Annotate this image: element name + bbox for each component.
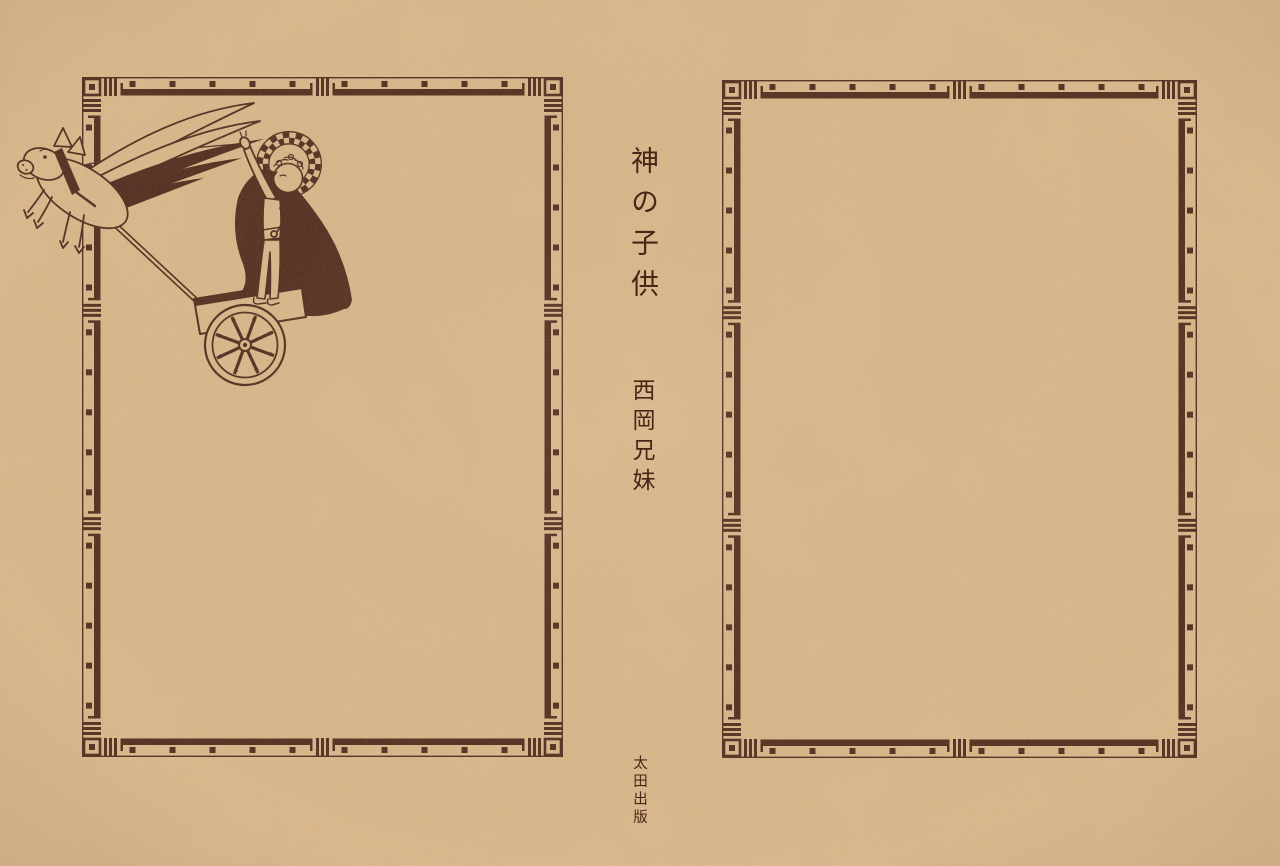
- spine-author: 西岡兄妹: [624, 378, 658, 498]
- spine-title: 神の子供: [623, 146, 663, 310]
- book-cover-spread: 神の子供 西岡兄妹 太田出版: [0, 0, 1280, 866]
- publisher-name: 太田出版: [629, 755, 650, 827]
